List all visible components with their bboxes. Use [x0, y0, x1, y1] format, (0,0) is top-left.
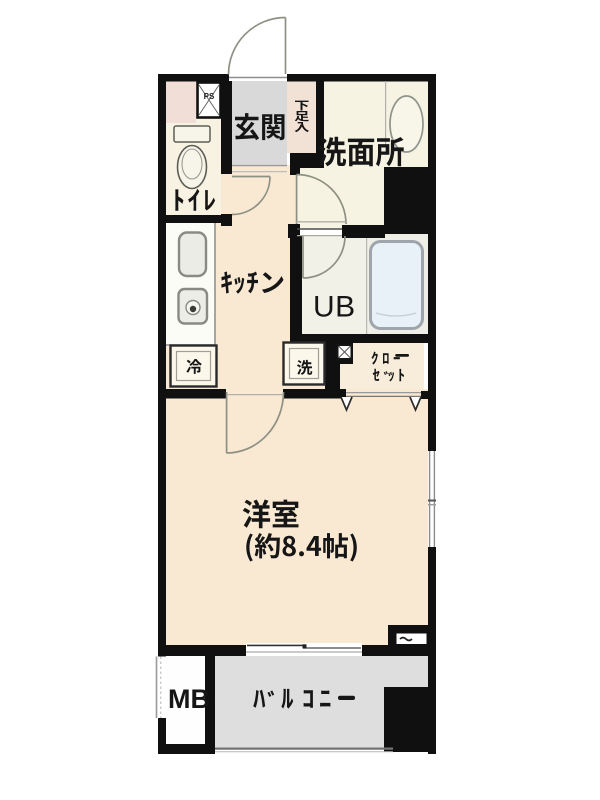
svg-text:UB: UB — [313, 291, 356, 324]
svg-text:MB: MB — [168, 684, 210, 714]
svg-text:PS: PS — [204, 92, 215, 101]
